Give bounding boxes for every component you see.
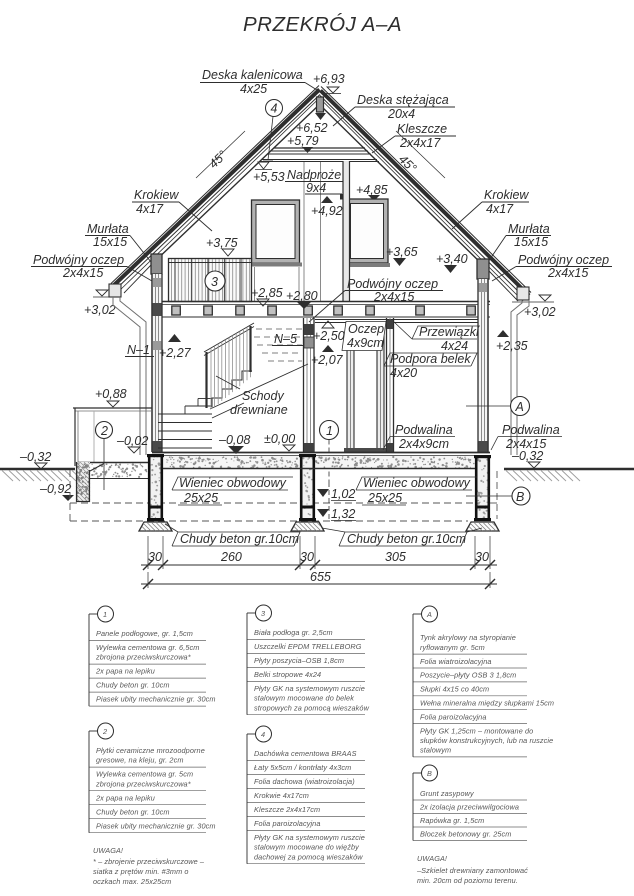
svg-text:Panele podłogowe, gr. 1,5cm: Panele podłogowe, gr. 1,5cm (96, 629, 193, 638)
svg-text:Biała podłoga gr. 2,5cm: Biała podłoga gr. 2,5cm (254, 628, 333, 637)
svg-text:stalowym mocowane do belek: stalowym mocowane do belek (254, 694, 354, 703)
svg-text:Podwójny oczep: Podwójny oczep (33, 253, 124, 267)
svg-text:3: 3 (261, 609, 265, 618)
svg-text:+2,85: +2,85 (251, 286, 283, 300)
svg-text:Folia dachowa (wiatroizolacja): Folia dachowa (wiatroizolacja) (254, 777, 355, 786)
svg-text:Płytki ceramiczne mrozoodporne: Płytki ceramiczne mrozoodporne (96, 746, 205, 755)
svg-text:305: 305 (385, 550, 406, 564)
svg-text:Oczep: Oczep (348, 322, 384, 336)
svg-text:Poszycie–płyty OSB 3 1,8cm: Poszycie–płyty OSB 3 1,8cm (420, 671, 516, 680)
svg-text:N–5: N–5 (274, 332, 297, 346)
svg-text:Uszczelki EPDM TRELLEBORG: Uszczelki EPDM TRELLEBORG (254, 642, 362, 651)
svg-text:Bloczek betonowy gr. 25cm: Bloczek betonowy gr. 25cm (420, 830, 511, 839)
svg-text:2x papa na lepiku: 2x papa na lepiku (95, 667, 155, 676)
svg-text:zbrojona przeciwskurczowa*: zbrojona przeciwskurczowa* (95, 653, 192, 662)
svg-text:30: 30 (300, 550, 314, 564)
svg-text:Kleszcze: Kleszcze (397, 122, 447, 136)
svg-text:4x17: 4x17 (486, 202, 514, 216)
svg-text:4x25: 4x25 (240, 82, 267, 96)
svg-text:Krokwie 4x17cm: Krokwie 4x17cm (254, 791, 309, 800)
svg-text:Dachówka cementowa BRAAS: Dachówka cementowa BRAAS (254, 749, 357, 758)
svg-text:B: B (516, 490, 524, 504)
svg-text:drewniane: drewniane (230, 403, 288, 417)
svg-text:UWAGA!: UWAGA! (93, 846, 123, 855)
svg-text:* – zbrojenie przeciwskurczowe: * – zbrojenie przeciwskurczowe – (93, 857, 205, 866)
svg-text:Grunt zasypowy: Grunt zasypowy (420, 789, 475, 798)
svg-text:+4,92: +4,92 (311, 204, 343, 218)
svg-text:25x25: 25x25 (183, 491, 218, 505)
svg-text:Przewiązki: Przewiązki (419, 325, 480, 339)
svg-text:Chudy beton gr. 10cm: Chudy beton gr. 10cm (96, 681, 170, 690)
svg-text:ryflowanym gr. 5cm: ryflowanym gr. 5cm (420, 643, 485, 652)
svg-text:1,02: 1,02 (331, 487, 355, 501)
svg-text:A: A (515, 400, 524, 414)
svg-text:2x4x15: 2x4x15 (547, 266, 588, 280)
svg-text:Murłata: Murłata (87, 222, 129, 236)
svg-text:Podwójny oczep: Podwójny oczep (518, 253, 609, 267)
svg-text:+2,07: +2,07 (311, 353, 344, 367)
svg-text:4x20: 4x20 (390, 366, 417, 380)
svg-text:+2,50: +2,50 (313, 329, 345, 343)
svg-text:15x15: 15x15 (93, 235, 127, 249)
svg-text:2x4x15: 2x4x15 (62, 266, 103, 280)
svg-text:–Szkielet drewniany zamontować: –Szkielet drewniany zamontować (416, 866, 528, 875)
svg-text:Krokiew: Krokiew (134, 188, 179, 202)
svg-text:Płyty poszycia–OSB 1,8cm: Płyty poszycia–OSB 1,8cm (254, 656, 344, 665)
svg-text:+6,93: +6,93 (313, 72, 345, 86)
svg-text:Belki stropowe 4x24: Belki stropowe 4x24 (254, 670, 321, 679)
svg-text:4: 4 (261, 730, 265, 739)
svg-text:+5,53: +5,53 (253, 170, 285, 184)
svg-text:Folia paroizolacyjna: Folia paroizolacyjna (420, 712, 487, 721)
svg-text:30: 30 (475, 550, 489, 564)
svg-text:Wylewka cementowa gr. 5cm: Wylewka cementowa gr. 5cm (96, 770, 193, 779)
svg-text:2: 2 (102, 727, 107, 736)
svg-text:4x24: 4x24 (441, 339, 468, 353)
svg-text:2x4x9cm: 2x4x9cm (398, 437, 449, 451)
svg-text:Płyty GK 1,25cm – montowane do: Płyty GK 1,25cm – montowane do (420, 726, 533, 735)
svg-text:9x4: 9x4 (306, 181, 326, 195)
svg-text:Piasek ubity mechanicznie gr.: Piasek ubity mechanicznie gr. 30cm (96, 695, 216, 704)
svg-text:Piasek ubity mechanicznie gr.: Piasek ubity mechanicznie gr. 30cm (96, 821, 216, 830)
svg-text:stropowych za pomocą wieszaków: stropowych za pomocą wieszaków (254, 703, 370, 712)
svg-text:B: B (427, 769, 432, 778)
svg-text:25x25: 25x25 (367, 491, 402, 505)
svg-text:Deska stężająca: Deska stężająca (357, 93, 449, 107)
svg-text:oczkach max. 25x25cm: oczkach max. 25x25cm (93, 877, 171, 886)
svg-text:+3,75: +3,75 (206, 236, 238, 250)
svg-text:Tynk akrylowy na styropianie: Tynk akrylowy na styropianie (420, 633, 516, 642)
svg-text:+3,40: +3,40 (436, 252, 468, 266)
svg-text:3: 3 (211, 275, 218, 289)
svg-text:siatka z prętów min. #3mm o: siatka z prętów min. #3mm o (93, 867, 189, 876)
svg-text:zbrojona przeciwskurczowa*: zbrojona przeciwskurczowa* (95, 779, 192, 788)
svg-text:Słupki 4x15 co 40cm: Słupki 4x15 co 40cm (420, 685, 489, 694)
svg-text:+4,85: +4,85 (356, 183, 388, 197)
svg-text:Schody: Schody (242, 389, 284, 403)
svg-text:gresowe, na kleju, gr. 2cm: gresowe, na kleju, gr. 2cm (96, 756, 184, 765)
svg-text:2x izolacja przeciwwilgociowa: 2x izolacja przeciwwilgociowa (419, 803, 519, 812)
svg-text:Łaty 5x5cm / kontrłaty 4x3cm: Łaty 5x5cm / kontrłaty 4x3cm (254, 763, 351, 772)
svg-text:+5,79: +5,79 (287, 134, 319, 148)
svg-text:20x4: 20x4 (387, 107, 415, 121)
svg-text:Wełna mineralna między słupkam: Wełna mineralna między słupkami 15cm (420, 699, 554, 708)
svg-text:4: 4 (271, 102, 278, 116)
svg-text:A: A (426, 610, 432, 619)
svg-text:Kleszcze 2x4x17cm: Kleszcze 2x4x17cm (254, 805, 320, 814)
svg-text:Podwalina: Podwalina (502, 423, 560, 437)
svg-text:30: 30 (148, 550, 162, 564)
svg-text:15x15: 15x15 (514, 235, 548, 249)
svg-text:Podpora belek: Podpora belek (390, 352, 471, 366)
svg-text:2: 2 (100, 424, 108, 438)
svg-text:stalowym mocowane do więźby: stalowym mocowane do więźby (254, 843, 360, 852)
svg-text:Płyty GK na systemowym ruszcie: Płyty GK na systemowym ruszcie (254, 833, 365, 842)
svg-text:min. 20cm od poziomu terenu.: min. 20cm od poziomu terenu. (417, 876, 518, 885)
svg-text:stalowym: stalowym (420, 746, 451, 755)
svg-text:Podwójny oczep: Podwójny oczep (347, 277, 438, 291)
svg-text:260: 260 (220, 550, 242, 564)
svg-text:–0,32: –0,32 (19, 450, 51, 464)
svg-text:Wieniec obwodowy: Wieniec obwodowy (363, 476, 471, 490)
svg-text:Wieniec obwodowy: Wieniec obwodowy (179, 476, 287, 490)
svg-text:Chudy beton gr.10cm: Chudy beton gr.10cm (180, 532, 299, 546)
svg-text:Krokiew: Krokiew (484, 188, 529, 202)
svg-text:–0,32: –0,32 (511, 449, 543, 463)
svg-text:Podwalina: Podwalina (395, 423, 453, 437)
svg-text:Rapówka gr. 1,5cm: Rapówka gr. 1,5cm (420, 816, 484, 825)
svg-text:dachowej za pomocą wieszaków: dachowej za pomocą wieszaków (254, 852, 363, 861)
svg-text:1: 1 (103, 610, 107, 619)
svg-text:słupków konstrukcyjnych, lub n: słupków konstrukcyjnych, lub na ruszcie (420, 736, 553, 745)
svg-text:–0,08: –0,08 (218, 433, 250, 447)
svg-text:Murłata: Murłata (508, 222, 550, 236)
svg-text:PRZEKRÓJ A–A: PRZEKRÓJ A–A (243, 13, 402, 36)
svg-text:655: 655 (310, 570, 331, 584)
svg-text:±0,00: ±0,00 (264, 432, 295, 446)
svg-text:Deska kalenicowa: Deska kalenicowa (202, 68, 303, 82)
svg-text:Folia wiatroizolacyjna: Folia wiatroizolacyjna (420, 657, 492, 666)
svg-text:N–1: N–1 (127, 343, 150, 357)
svg-text:Płyty GK na systemowym ruszcie: Płyty GK na systemowym ruszcie (254, 684, 365, 693)
svg-text:+6,52: +6,52 (296, 121, 328, 135)
svg-text:Nadproże: Nadproże (287, 168, 341, 182)
svg-text:+2,35: +2,35 (496, 339, 528, 353)
svg-text:2x papa na lepiku: 2x papa na lepiku (95, 793, 155, 802)
svg-text:+0,88: +0,88 (95, 387, 127, 401)
svg-text:+2,27: +2,27 (159, 346, 192, 360)
svg-text:+3,02: +3,02 (524, 305, 556, 319)
svg-text:Folia paroizolacyjna: Folia paroizolacyjna (254, 819, 321, 828)
svg-text:2x4x17: 2x4x17 (399, 136, 441, 150)
svg-text:–0,92: –0,92 (39, 482, 71, 496)
svg-text:+3,65: +3,65 (386, 245, 418, 259)
svg-text:Chudy beton gr. 10cm: Chudy beton gr. 10cm (96, 807, 170, 816)
svg-text:1,32: 1,32 (331, 507, 355, 521)
svg-text:1: 1 (326, 424, 333, 438)
svg-text:–0,02: –0,02 (116, 434, 148, 448)
svg-text:+3,02: +3,02 (84, 303, 116, 317)
svg-text:4x9cm: 4x9cm (347, 336, 384, 350)
svg-text:UWAGA!: UWAGA! (417, 854, 447, 863)
svg-text:4x17: 4x17 (136, 202, 164, 216)
svg-text:Wylewka cementowa gr. 6,5cm: Wylewka cementowa gr. 6,5cm (96, 643, 199, 652)
svg-text:+2,80: +2,80 (286, 289, 318, 303)
svg-text:Chudy beton gr.10cm: Chudy beton gr.10cm (347, 532, 466, 546)
svg-text:2x4x15: 2x4x15 (373, 290, 414, 304)
